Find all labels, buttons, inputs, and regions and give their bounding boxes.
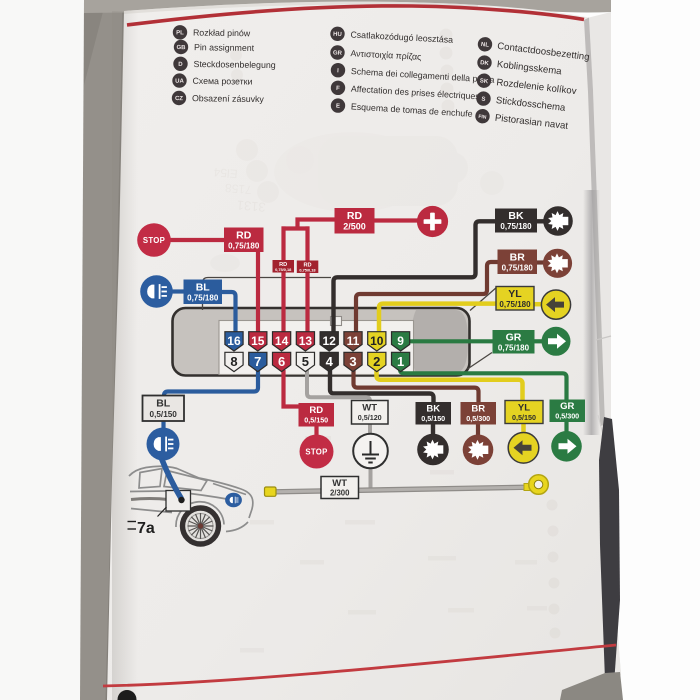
svg-text:UA: UA xyxy=(175,79,184,85)
svg-text:BL: BL xyxy=(156,398,171,410)
svg-text:GR: GR xyxy=(333,50,343,56)
svg-text:0,5/300: 0,5/300 xyxy=(466,414,490,423)
svg-text:Steckdosenbelegung: Steckdosenbelegung xyxy=(193,59,275,70)
svg-text:0,5/150: 0,5/150 xyxy=(512,413,536,422)
svg-text:S: S xyxy=(481,96,486,102)
svg-text:RD: RD xyxy=(309,405,323,416)
svg-text:DK: DK xyxy=(480,60,490,67)
svg-text:El54: El54 xyxy=(213,165,238,181)
svg-text:0,5/150: 0,5/150 xyxy=(304,416,328,425)
svg-text:0,5/120: 0,5/120 xyxy=(358,413,382,422)
svg-text:12: 12 xyxy=(323,334,337,348)
svg-text:9: 9 xyxy=(397,334,404,348)
svg-text:14: 14 xyxy=(275,334,289,348)
svg-text:0,75/180: 0,75/180 xyxy=(498,344,530,353)
svg-text:0,5/150: 0,5/150 xyxy=(421,414,445,423)
svg-text:0,75/180: 0,75/180 xyxy=(502,264,534,273)
svg-text:Схема розетки: Схема розетки xyxy=(192,76,252,87)
svg-text:D: D xyxy=(178,62,183,68)
svg-text:1: 1 xyxy=(397,354,404,369)
svg-text:SK: SK xyxy=(479,78,489,85)
svg-text:WT: WT xyxy=(332,478,347,489)
svg-text:0,75/180: 0,75/180 xyxy=(228,242,260,251)
svg-text:0,75/0,18: 0,75/0,18 xyxy=(299,268,316,273)
svg-text:2/500: 2/500 xyxy=(343,222,366,232)
svg-text:NL: NL xyxy=(481,42,490,49)
svg-text:0,75/180: 0,75/180 xyxy=(187,294,219,303)
svg-text:WT: WT xyxy=(362,403,377,414)
svg-text:4: 4 xyxy=(326,354,334,369)
svg-text:RD: RD xyxy=(347,210,363,222)
svg-text:Rozkład pinów: Rozkład pinów xyxy=(193,27,251,38)
svg-text:5: 5 xyxy=(302,354,309,369)
svg-text:STOP: STOP xyxy=(143,236,165,245)
svg-text:13: 13 xyxy=(299,334,313,348)
svg-text:0,5/150: 0,5/150 xyxy=(150,410,178,419)
svg-text:0,75/0,18: 0,75/0,18 xyxy=(275,267,292,272)
svg-text:0,75/180: 0,75/180 xyxy=(499,300,531,309)
svg-text:16: 16 xyxy=(227,334,241,348)
svg-text:11: 11 xyxy=(347,334,360,348)
svg-text:7: 7 xyxy=(254,354,261,369)
svg-text:YL: YL xyxy=(518,403,530,414)
svg-text:15: 15 xyxy=(251,334,265,348)
svg-text:BK: BK xyxy=(508,210,524,222)
svg-text:BR: BR xyxy=(471,404,485,415)
svg-text:0,5/300: 0,5/300 xyxy=(555,412,579,421)
svg-text:BL: BL xyxy=(196,281,211,293)
svg-text:STOP: STOP xyxy=(305,448,327,457)
svg-text:0,75/180: 0,75/180 xyxy=(500,222,532,231)
svg-text:3131: 3131 xyxy=(236,197,266,214)
svg-text:2: 2 xyxy=(373,354,380,369)
svg-text:PL: PL xyxy=(176,30,184,36)
svg-text:F: F xyxy=(336,86,340,92)
svg-text:BR: BR xyxy=(510,251,526,263)
svg-text:6: 6 xyxy=(278,354,285,369)
svg-text:CZ: CZ xyxy=(175,96,183,102)
svg-text:3: 3 xyxy=(349,354,356,369)
svg-text:HU: HU xyxy=(333,32,342,38)
svg-text:8: 8 xyxy=(230,354,237,369)
svg-text:10: 10 xyxy=(370,334,384,348)
svg-text:GB: GB xyxy=(176,45,186,51)
svg-text:Obsazení zásuvky: Obsazení zásuvky xyxy=(192,93,265,104)
svg-text:GR: GR xyxy=(506,332,522,344)
svg-text:RD: RD xyxy=(236,229,252,241)
svg-text:2/300: 2/300 xyxy=(330,489,350,498)
svg-text:Pin assignment: Pin assignment xyxy=(194,42,255,53)
svg-text:FIN: FIN xyxy=(478,114,487,121)
svg-text:7158: 7158 xyxy=(224,181,252,197)
svg-text:7a: 7a xyxy=(137,520,155,537)
svg-text:YL: YL xyxy=(508,288,522,300)
svg-text:E: E xyxy=(336,104,340,110)
svg-text:GR: GR xyxy=(560,401,574,412)
svg-text:BK: BK xyxy=(426,404,440,415)
